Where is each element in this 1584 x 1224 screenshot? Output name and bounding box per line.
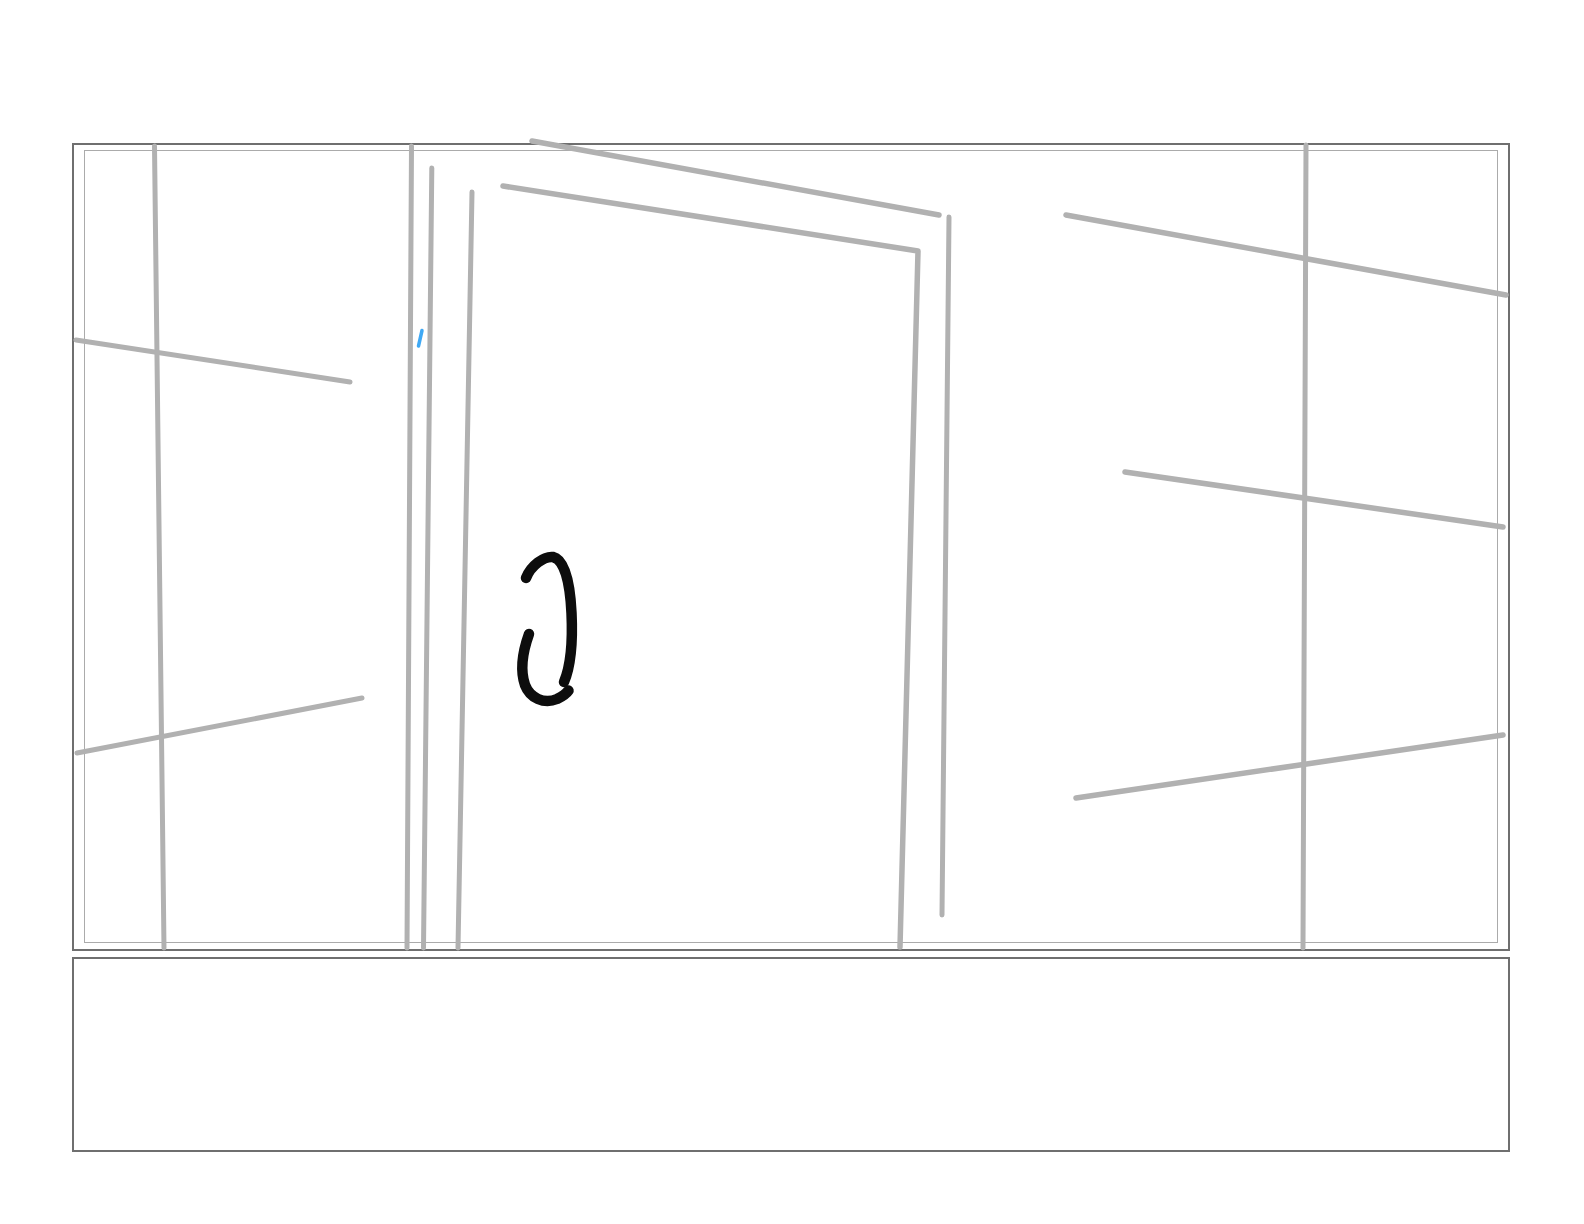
bottom-panel[interactable] <box>72 957 1510 1152</box>
canvas-inner-frame <box>84 150 1498 943</box>
app-background: { "colors": { "background": "#ffffff", "… <box>0 0 1584 1224</box>
